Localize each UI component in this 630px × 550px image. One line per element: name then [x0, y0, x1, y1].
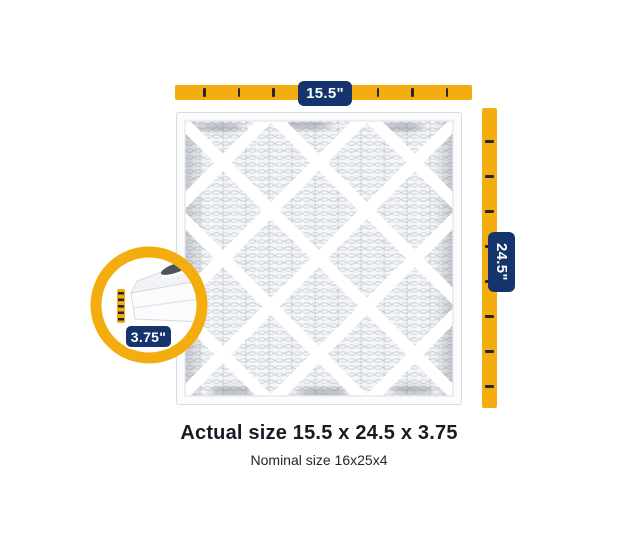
- ruler-tick: [272, 88, 275, 97]
- ruler-tick: [485, 385, 494, 388]
- height-badge: 24.5": [488, 232, 515, 292]
- air-filter-image: [176, 112, 462, 405]
- actual-size-caption: Actual size 15.5 x 24.5 x 3.75: [180, 422, 457, 445]
- depth-mini-ruler: [117, 289, 125, 323]
- ruler-tick: [238, 88, 241, 97]
- ruler-tick: [203, 88, 206, 97]
- corner-zoom-callout: [80, 235, 218, 373]
- ruler-tick: [485, 350, 494, 353]
- filter-media: [176, 112, 462, 405]
- ruler-tick: [411, 88, 414, 97]
- ruler-tick: [485, 210, 494, 213]
- nominal-size-caption: Nominal size 16x25x4: [251, 452, 388, 468]
- depth-badge: 3.75": [124, 324, 173, 349]
- product-dimension-diagram: 15.5" 24.5": [0, 0, 630, 550]
- filter-lattice: [176, 112, 462, 405]
- width-badge: 15.5": [298, 81, 352, 106]
- ruler-tick: [485, 140, 494, 143]
- ruler-tick: [485, 175, 494, 178]
- ruler-tick: [485, 315, 494, 318]
- ruler-tick: [377, 88, 380, 97]
- ruler-tick: [446, 88, 449, 97]
